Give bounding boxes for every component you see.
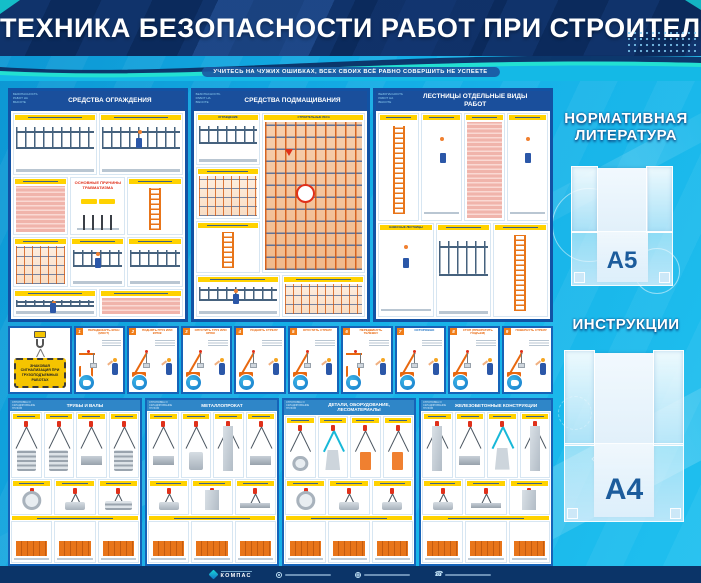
- ladder-art: [378, 113, 419, 221]
- signal-description-lines: [315, 339, 335, 346]
- crane-art: [507, 350, 524, 377]
- cell-illustration: [321, 425, 346, 475]
- cell-illustration: [467, 122, 502, 218]
- cell-header-bar: [352, 418, 379, 423]
- cell-header-bar: [284, 277, 364, 282]
- main-causes-panel: ОСНОВНЫЕ ПРИЧИНЫ ТРАВМАТИЗМА: [70, 177, 125, 235]
- signal-description-lines: [262, 339, 282, 346]
- cell-illustration: [57, 488, 92, 512]
- cell-header-bar: [287, 418, 314, 423]
- cell-illustration: [381, 232, 430, 314]
- cell-header-bar: [424, 414, 451, 419]
- pocket-flap: [653, 350, 684, 446]
- cell-header-bar: [438, 225, 489, 230]
- metal-stacking-art: [148, 521, 189, 563]
- pipe-sling-art: [44, 412, 75, 478]
- timber-stacking-art: [328, 521, 369, 563]
- signal-description-lines: [529, 339, 549, 346]
- cell-illustration: [14, 530, 49, 560]
- poster-header: СТРОПОВКА И СКЛАДИРОВАНИЕ ГРУЗОВ МЕТАЛЛО…: [147, 400, 277, 411]
- cell-header-bar: [129, 239, 180, 244]
- crate-sling-art: [383, 416, 414, 478]
- poster-corner-label: СТРОПОВКА И СКЛАДИРОВАНИЕ ГРУЗОВ: [286, 401, 306, 410]
- top-poster-row: БЕЗОПАСНОСТЬ РАБОТ НА ВЫСОТЕ СРЕДСТВА ОГ…: [8, 88, 553, 322]
- crane-art: [79, 350, 96, 377]
- shaft-sling-art: [76, 412, 107, 478]
- signal-label: ПОДНЯТЬ ГРУЗ ИЛИ КРЮК: [138, 329, 175, 336]
- cell-header-bar: [330, 481, 367, 486]
- cell-header-bar: [150, 481, 187, 486]
- signal-number-badge: 9: [504, 328, 511, 335]
- element-sling-art: [422, 479, 463, 515]
- cell-illustration: [151, 421, 176, 475]
- cell-illustration: [151, 530, 186, 560]
- cone-sling-art: [318, 416, 349, 478]
- cell-illustration: [375, 488, 410, 512]
- signalman-art: [378, 358, 388, 379]
- cell-illustration: [249, 421, 274, 475]
- worker-on-platform-art: [99, 113, 183, 175]
- beam-sling-art: [246, 412, 277, 478]
- crane-art: [132, 350, 149, 377]
- truss-sling-art: [487, 412, 518, 478]
- cell-illustration: [194, 530, 229, 560]
- cell-header-bar: [13, 481, 50, 486]
- metal-stacking-art: [235, 521, 276, 563]
- signal-label: ПОВЕРНУТЬ СТРЕЛУ: [513, 329, 550, 332]
- a4-document-pocket: А4: [564, 350, 684, 522]
- signal-label: ОСТОРОЖНО: [406, 329, 443, 332]
- timber-stacking-art: [372, 521, 413, 563]
- cell-header-bar: [380, 115, 417, 120]
- cell-illustration: [288, 425, 313, 475]
- cell-illustration: [510, 122, 545, 218]
- cell-illustration: [14, 488, 49, 512]
- cell-illustration: [16, 122, 94, 172]
- cell-header-bar: [15, 115, 95, 120]
- cell-illustration: [199, 230, 257, 270]
- cell-header-bar: [15, 291, 95, 296]
- ladder-worker-art: [507, 113, 548, 221]
- cell-header-bar: [495, 225, 546, 230]
- cell-header-bar: [489, 414, 516, 419]
- fencing-section-art: ОГРАЖДЕНИЕ: [196, 113, 260, 165]
- cell-header-bar: [509, 115, 546, 120]
- contact-text-line: [285, 574, 331, 576]
- signal-number-badge: 8: [450, 328, 457, 335]
- poster-corner-label: БЕЗОПАСНОСТЬ РАБОТ НА ВЫСОТЕ: [196, 93, 222, 104]
- hand-gesture-icon: [131, 374, 148, 391]
- contact-text-line: [445, 574, 491, 576]
- load-sling-art: [54, 479, 95, 515]
- guardrail-art: [127, 237, 182, 287]
- cell-header-bar: СТРОИТЕЛЬНЫЕ ЛЕСА: [264, 115, 363, 120]
- poster-corner-label: СТРОПОВКА И СКЛАДИРОВАНИЕ ГРУЗОВ: [423, 401, 443, 410]
- signalman-art: [271, 358, 281, 379]
- construction-scaffold-art: СТРОИТЕЛЬНЫЕ ЛЕСА: [262, 113, 365, 273]
- signalman-art: [164, 358, 174, 379]
- concrete-stacking-art: [422, 521, 463, 563]
- coil-sling-art: [11, 479, 52, 515]
- poster-corner-label: СТРОПОВКА И СКЛАДИРОВАНИЕ ГРУЗОВ: [149, 401, 169, 410]
- signal-number-badge: 1: [76, 328, 83, 335]
- poster-body: [421, 411, 551, 564]
- phone-icon: [434, 571, 443, 578]
- poster-fencing-means: БЕЗОПАСНОСТЬ РАБОТ НА ВЫСОТЕ СРЕДСТВА ОГ…: [8, 88, 188, 322]
- cell-illustration: [425, 488, 460, 512]
- cell-header-bar: [183, 414, 210, 419]
- signalman-art: [324, 358, 334, 379]
- pocket-flap: [571, 166, 598, 233]
- signal-description-lines: [476, 339, 496, 346]
- signal-panel: 6ПЕРЕДВИНУТЬ ТЕЛЕЖКУ: [341, 326, 392, 394]
- cell-illustration: [288, 488, 323, 512]
- worker-art: [196, 275, 280, 317]
- wheel-sling-art: [285, 479, 326, 515]
- hand-gesture-icon: [238, 374, 255, 391]
- cell-header-bar: [385, 418, 412, 423]
- cell-header-bar: [56, 481, 93, 486]
- cell-illustration: [424, 122, 459, 218]
- traverse-sling-art: [465, 479, 506, 515]
- cell-header-bar: [423, 115, 460, 120]
- signal-sign-panel: ЗНАКОВАЯ СИГНАЛИЗАЦИЯ ПРИ ГРУЗОПОДЪЕМНЫХ…: [8, 326, 72, 394]
- cell-header-bar: [15, 179, 66, 184]
- frame-sling-art: [520, 412, 551, 478]
- instructions-heading: ИНСТРУКЦИИ: [551, 316, 701, 333]
- cell-illustration: [285, 284, 363, 314]
- cell-header-bar: [72, 239, 123, 244]
- signalman-art: [217, 358, 227, 379]
- cell-illustration: [439, 232, 488, 314]
- logo-text: КОМПАС: [221, 571, 252, 579]
- equipment-sling-art: [328, 479, 369, 515]
- corner-triangle-icon: [0, 0, 20, 14]
- hand-gesture-icon: [399, 374, 416, 391]
- cell-illustration: [130, 246, 179, 284]
- beam-sling-art: [235, 479, 276, 515]
- pocket-flap: [564, 350, 595, 446]
- poster-body: ОГРАЖДЕНИЕ СТРОИТЕЛЬНЫЕ ЛЕСА: [194, 111, 368, 319]
- signal-number-badge: 7: [397, 328, 404, 335]
- crane-art: [186, 350, 203, 377]
- signal-panel: 9ПОВЕРНУТЬ СТРЕЛУ: [502, 326, 553, 394]
- cell-header-bar: [198, 169, 258, 174]
- metal-stacking-art: [191, 521, 232, 563]
- poster-title: ЛЕСТНИЦЫ ОТДЕЛЬНЫЕ ВИДЫ РАБОТ: [421, 93, 529, 109]
- pocket-size-label: А5: [571, 247, 673, 275]
- container-sling-art: [350, 416, 381, 478]
- ladder-section-art: [196, 221, 260, 273]
- cell-illustration: [194, 488, 229, 512]
- cell-illustration: [496, 232, 545, 314]
- cell-illustration: [14, 421, 39, 475]
- signal-panel: 8СТОП (ПРЕКРАТИТЬ ПОДЪЕМ): [448, 326, 499, 394]
- cell-header-bar: [198, 223, 258, 228]
- equipment-sling-art: [372, 479, 413, 515]
- cell-header-bar: [101, 291, 181, 296]
- cell-illustration: [353, 425, 378, 475]
- main-causes-title: ОСНОВНЫЕ ПРИЧИНЫ ТРАВМАТИЗМА: [71, 178, 124, 192]
- cell-illustration: [79, 421, 104, 475]
- pipe-sling-art: [11, 412, 42, 478]
- poster-header: БЕЗОПАСНОСТЬ РАБОТ НА ВЫСОТЕ ЛЕСТНИЦЫ ОТ…: [376, 91, 550, 111]
- poster-body: [147, 411, 277, 564]
- location-icon: [276, 572, 282, 578]
- cell-header-bar: [374, 481, 411, 486]
- cell-illustration: [238, 488, 273, 512]
- section-divider: [12, 516, 138, 520]
- cell-illustration: [386, 425, 411, 475]
- signal-panel: 5ОПУСТИТЬ СТРЕЛУ: [288, 326, 339, 394]
- signal-label: ПЕРЕДВИНУТЬ ТЕЛЕЖКУ: [352, 329, 389, 336]
- pipe-stacking-art: [98, 521, 139, 563]
- cell-illustration: [375, 530, 410, 560]
- cell-illustration: [16, 186, 65, 232]
- hand-gesture-icon: [452, 374, 469, 391]
- brick-wall-art: [13, 177, 68, 235]
- poster-pipes-shafts: СТРОПОВКА И СКЛАДИРОВАНИЕ ГРУЗОВ ТРУБЫ И…: [8, 398, 142, 566]
- poster-header: СТРОПОВКА И СКЛАДИРОВАНИЕ ГРУЗОВ ЖЕЛЕЗОБ…: [421, 400, 551, 411]
- crane-hook-icon: [36, 339, 44, 348]
- cell-header-bar: [466, 115, 503, 120]
- load-sling-art: [148, 479, 189, 515]
- cell-header-bar: [320, 418, 347, 423]
- cell-illustration: [101, 530, 136, 560]
- cell-header-bar: [287, 481, 324, 486]
- hand-gesture-icon: [506, 374, 523, 391]
- sheet-sling-art: [213, 412, 244, 478]
- cell-header-bar: [193, 481, 230, 486]
- poster-header: БЕЗОПАСНОСТЬ РАБОТ НА ВЫСОТЕ СРЕДСТВА ПО…: [194, 91, 368, 111]
- scaffold-art: [282, 275, 366, 317]
- signal-panel: 4ПОДНЯТЬ СТРЕЛУ: [234, 326, 285, 394]
- normative-literature-heading: НОРМАТИВНАЯ ЛИТЕРАТУРА: [551, 110, 701, 145]
- cell-illustration: [425, 530, 460, 560]
- cell-illustration: [425, 421, 450, 475]
- cell-illustration: [102, 298, 180, 314]
- cell-header-bar: [215, 414, 242, 419]
- poster-body: НАВЕСНЫЕ ЛЕСТНИЦЫ: [376, 111, 550, 319]
- cell-illustration: [288, 530, 323, 560]
- brand-logo: КОМПАС: [210, 571, 252, 579]
- contact-item: [355, 572, 410, 578]
- safety-motto: УЧИТЕСЬ НА ЧУЖИХ ОШИБКАХ, ВСЕХ СВОИХ ВСЁ…: [201, 67, 499, 77]
- poster-body: [284, 415, 414, 564]
- signalman-art: [110, 358, 120, 379]
- cell-illustration: [199, 122, 257, 162]
- scaffold-section-art: [196, 167, 260, 219]
- cell-illustration: [47, 421, 72, 475]
- website-icon: [355, 572, 361, 578]
- timber-stacking-art: [285, 521, 326, 563]
- poster-title: ЖЕЛЕЗОБЕТОННЫЕ КОНСТРУКЦИИ: [455, 403, 537, 408]
- sheet-sling-art: [191, 479, 232, 515]
- poster-body: [10, 411, 140, 564]
- falling-figures-art: [77, 208, 120, 230]
- pipe-sling-art: [109, 412, 140, 478]
- cell-header-bar: [467, 481, 504, 486]
- cell-illustration: [112, 421, 137, 475]
- beam-sling-art: [148, 412, 179, 478]
- slab-sling-art: [422, 412, 453, 478]
- poster-title: СРЕДСТВА ПОДМАЩИВАНИЯ: [244, 97, 340, 105]
- poster-header: СТРОПОВКА И СКЛАДИРОВАНИЕ ГРУЗОВ ТРУБЫ И…: [10, 400, 140, 411]
- signal-label: ОПУСТИТЬ СТРЕЛУ: [299, 329, 336, 332]
- cell-header-bar: [15, 239, 66, 244]
- brick-wall-art: [99, 289, 183, 317]
- signal-description-lines: [369, 339, 389, 346]
- poster-title: СРЕДСТВА ОГРАЖДЕНИЯ: [68, 97, 151, 105]
- poster-scaffolding-means: БЕЗОПАСНОСТЬ РАБОТ НА ВЫСОТЕ СРЕДСТВА ПО…: [191, 88, 371, 322]
- signal-label: СТОП (ПРЕКРАТИТЬ ПОДЪЕМ): [459, 329, 496, 336]
- crane-art: [453, 350, 470, 377]
- signal-description-lines: [102, 339, 122, 346]
- cell-header-bar: [46, 414, 73, 419]
- hand-gesture-icon: [292, 374, 309, 391]
- signal-description-lines: [208, 339, 228, 346]
- cell-header-bar: [129, 179, 180, 184]
- crane-art: [346, 350, 363, 377]
- roof-work-art: [464, 113, 505, 221]
- poster-corner-label: СТРОПОВКА И СКЛАДИРОВАНИЕ ГРУЗОВ: [12, 401, 32, 410]
- cell-header-bar: ОГРАЖДЕНИЕ: [198, 115, 258, 120]
- section-divider: [286, 516, 412, 520]
- section-divider: [149, 516, 275, 520]
- cell-illustration: [331, 530, 366, 560]
- contact-item: [276, 572, 331, 578]
- panel-sling-art: [509, 479, 550, 515]
- signal-description-lines: [155, 339, 175, 346]
- cell-illustration: [216, 421, 241, 475]
- concrete-stacking-art: [465, 521, 506, 563]
- cell-header-bar: [13, 414, 40, 419]
- cell-illustration: [16, 246, 65, 284]
- hanging-ladders-art: НАВЕСНЫЕ ЛЕСТНИЦЫ: [378, 223, 433, 317]
- footer-bar: КОМПАС: [0, 566, 701, 583]
- pipe-stacking-art: [11, 521, 52, 563]
- cell-header-bar: [424, 481, 461, 486]
- worker-art: [13, 289, 97, 317]
- load-sling-art: [181, 412, 212, 478]
- logo-diamond-icon: [208, 570, 218, 580]
- cell-header-bar: [457, 414, 484, 419]
- cell-illustration: [265, 122, 362, 270]
- cell-header-bar: [100, 481, 137, 486]
- signal-label: ПОДНЯТЬ СТРЕЛУ: [245, 329, 282, 332]
- ladder-art: [493, 223, 548, 317]
- signal-number-badge: 3: [183, 328, 190, 335]
- beam-sling-art: [455, 412, 486, 478]
- cell-illustration: [102, 122, 180, 172]
- cell-header-bar: [111, 414, 138, 419]
- crane-art: [239, 350, 256, 377]
- cell-illustration: [101, 488, 136, 512]
- cell-illustration: [73, 246, 122, 284]
- pocket-size-label: А4: [564, 473, 684, 507]
- cell-header-bar: [198, 277, 278, 282]
- cell-header-bar: [511, 481, 548, 486]
- safety-stand-board: ТЕХНИКА БЕЗОПАСНОСТИ РАБОТ ПРИ СТРОИТЕЛЬ…: [0, 0, 701, 583]
- signalman-art: [485, 358, 495, 379]
- scaffold-art: [13, 237, 68, 287]
- poster-title: МЕТАЛЛОПРОКАТ: [201, 403, 242, 408]
- poster-body: ОСНОВНЫЕ ПРИЧИНЫ ТРАВМАТИЗМА: [11, 111, 185, 319]
- poster-corner-label: БЕЗОПАСНОСТЬ РАБОТ НА ВЫСОТЕ: [378, 93, 404, 104]
- cell-header-bar: НАВЕСНЫЕ ЛЕСТНИЦЫ: [380, 225, 431, 230]
- cell-illustration: [199, 176, 257, 216]
- crane-art: [400, 350, 417, 377]
- signal-panel: 7ОСТОРОЖНО: [395, 326, 446, 394]
- signalman-art: [538, 358, 548, 379]
- section-divider: [423, 516, 549, 520]
- cell-illustration: [468, 530, 503, 560]
- cell-illustration: [468, 488, 503, 512]
- signalman-art: [431, 358, 441, 379]
- pole-worker-art: [421, 113, 462, 221]
- crane-signals-row: ЗНАКОВАЯ СИГНАЛИЗАЦИЯ ПРИ ГРУЗОПОДЪЕМНЫХ…: [8, 326, 553, 394]
- pipe-sling-art: [98, 479, 139, 515]
- contact-item: [434, 571, 492, 578]
- pipe-stacking-art: [54, 521, 95, 563]
- hand-gesture-icon: [185, 374, 202, 391]
- poster-header: СТРОПОВКА И СКЛАДИРОВАНИЕ ГРУЗОВ ДЕТАЛИ,…: [284, 400, 414, 415]
- pocket-flap: [646, 166, 673, 233]
- cell-illustration: [130, 186, 179, 232]
- poster-reinforced-concrete: СТРОПОВКА И СКЛАДИРОВАНИЕ ГРУЗОВ ЖЕЛЕЗОБ…: [419, 398, 553, 566]
- a5-document-pocket: А5: [571, 166, 673, 286]
- cell-illustration: [16, 298, 94, 314]
- hand-gesture-icon: [78, 374, 95, 391]
- cell-illustration: [490, 421, 515, 475]
- poster-title: ДЕТАЛИ, ОБОРУДОВАНИЕ, ЛЕСОМАТЕРИАЛЫ: [306, 402, 412, 413]
- poster-corner-label: БЕЗОПАСНОСТЬ РАБОТ НА ВЫСОТЕ: [13, 93, 39, 104]
- signal-panel: 1ПЕРЕДВИНУТЬ КРАН (МОСТ): [74, 326, 125, 394]
- cell-illustration: [151, 488, 186, 512]
- concrete-stacking-art: [509, 521, 550, 563]
- cell-illustration: [331, 488, 366, 512]
- poster-header: БЕЗОПАСНОСТЬ РАБОТ НА ВЫСОТЕ СРЕДСТВА ОГ…: [11, 91, 185, 111]
- cell-header-bar: [150, 414, 177, 419]
- poster-title: ТРУБЫ И ВАЛЫ: [67, 403, 104, 408]
- signal-number-badge: 2: [129, 328, 136, 335]
- signal-panel: 3ОПУСТИТЬ ГРУЗ ИЛИ КРЮК: [181, 326, 232, 394]
- hazard-sign-text: ЗНАКОВАЯ СИГНАЛИЗАЦИЯ ПРИ ГРУЗОПОДЪЕМНЫХ…: [14, 358, 66, 388]
- cell-illustration: [523, 421, 548, 475]
- poster-rolled-metal: СТРОПОВКА И СКЛАДИРОВАНИЕ ГРУЗОВ МЕТАЛЛО…: [145, 398, 279, 566]
- guardrail-art: [13, 113, 97, 175]
- signal-description-lines: [422, 339, 442, 346]
- corner-triangle-icon: [685, 0, 701, 10]
- contact-text-line: [364, 574, 410, 576]
- cell-illustration: [57, 530, 92, 560]
- cell-illustration: [238, 530, 273, 560]
- worker-art: [70, 237, 125, 287]
- signal-panel: 2ПОДНЯТЬ ГРУЗ ИЛИ КРЮК: [127, 326, 178, 394]
- signal-label: ПЕРЕДВИНУТЬ КРАН (МОСТ): [85, 329, 122, 336]
- cell-illustration: [199, 284, 277, 314]
- cell-illustration: [381, 122, 416, 218]
- signal-number-badge: 4: [236, 328, 243, 335]
- poster-ladders-work-types: БЕЗОПАСНОСТЬ РАБОТ НА ВЫСОТЕ ЛЕСТНИЦЫ ОТ…: [373, 88, 553, 322]
- ladder-art: [127, 177, 182, 235]
- cell-header-bar: [522, 414, 549, 419]
- signal-number-badge: 5: [290, 328, 297, 335]
- cell-header-bar: [248, 414, 275, 419]
- cell-header-bar: [237, 481, 274, 486]
- crane-pulley-icon: [34, 331, 46, 338]
- guardrail-art: [436, 223, 491, 317]
